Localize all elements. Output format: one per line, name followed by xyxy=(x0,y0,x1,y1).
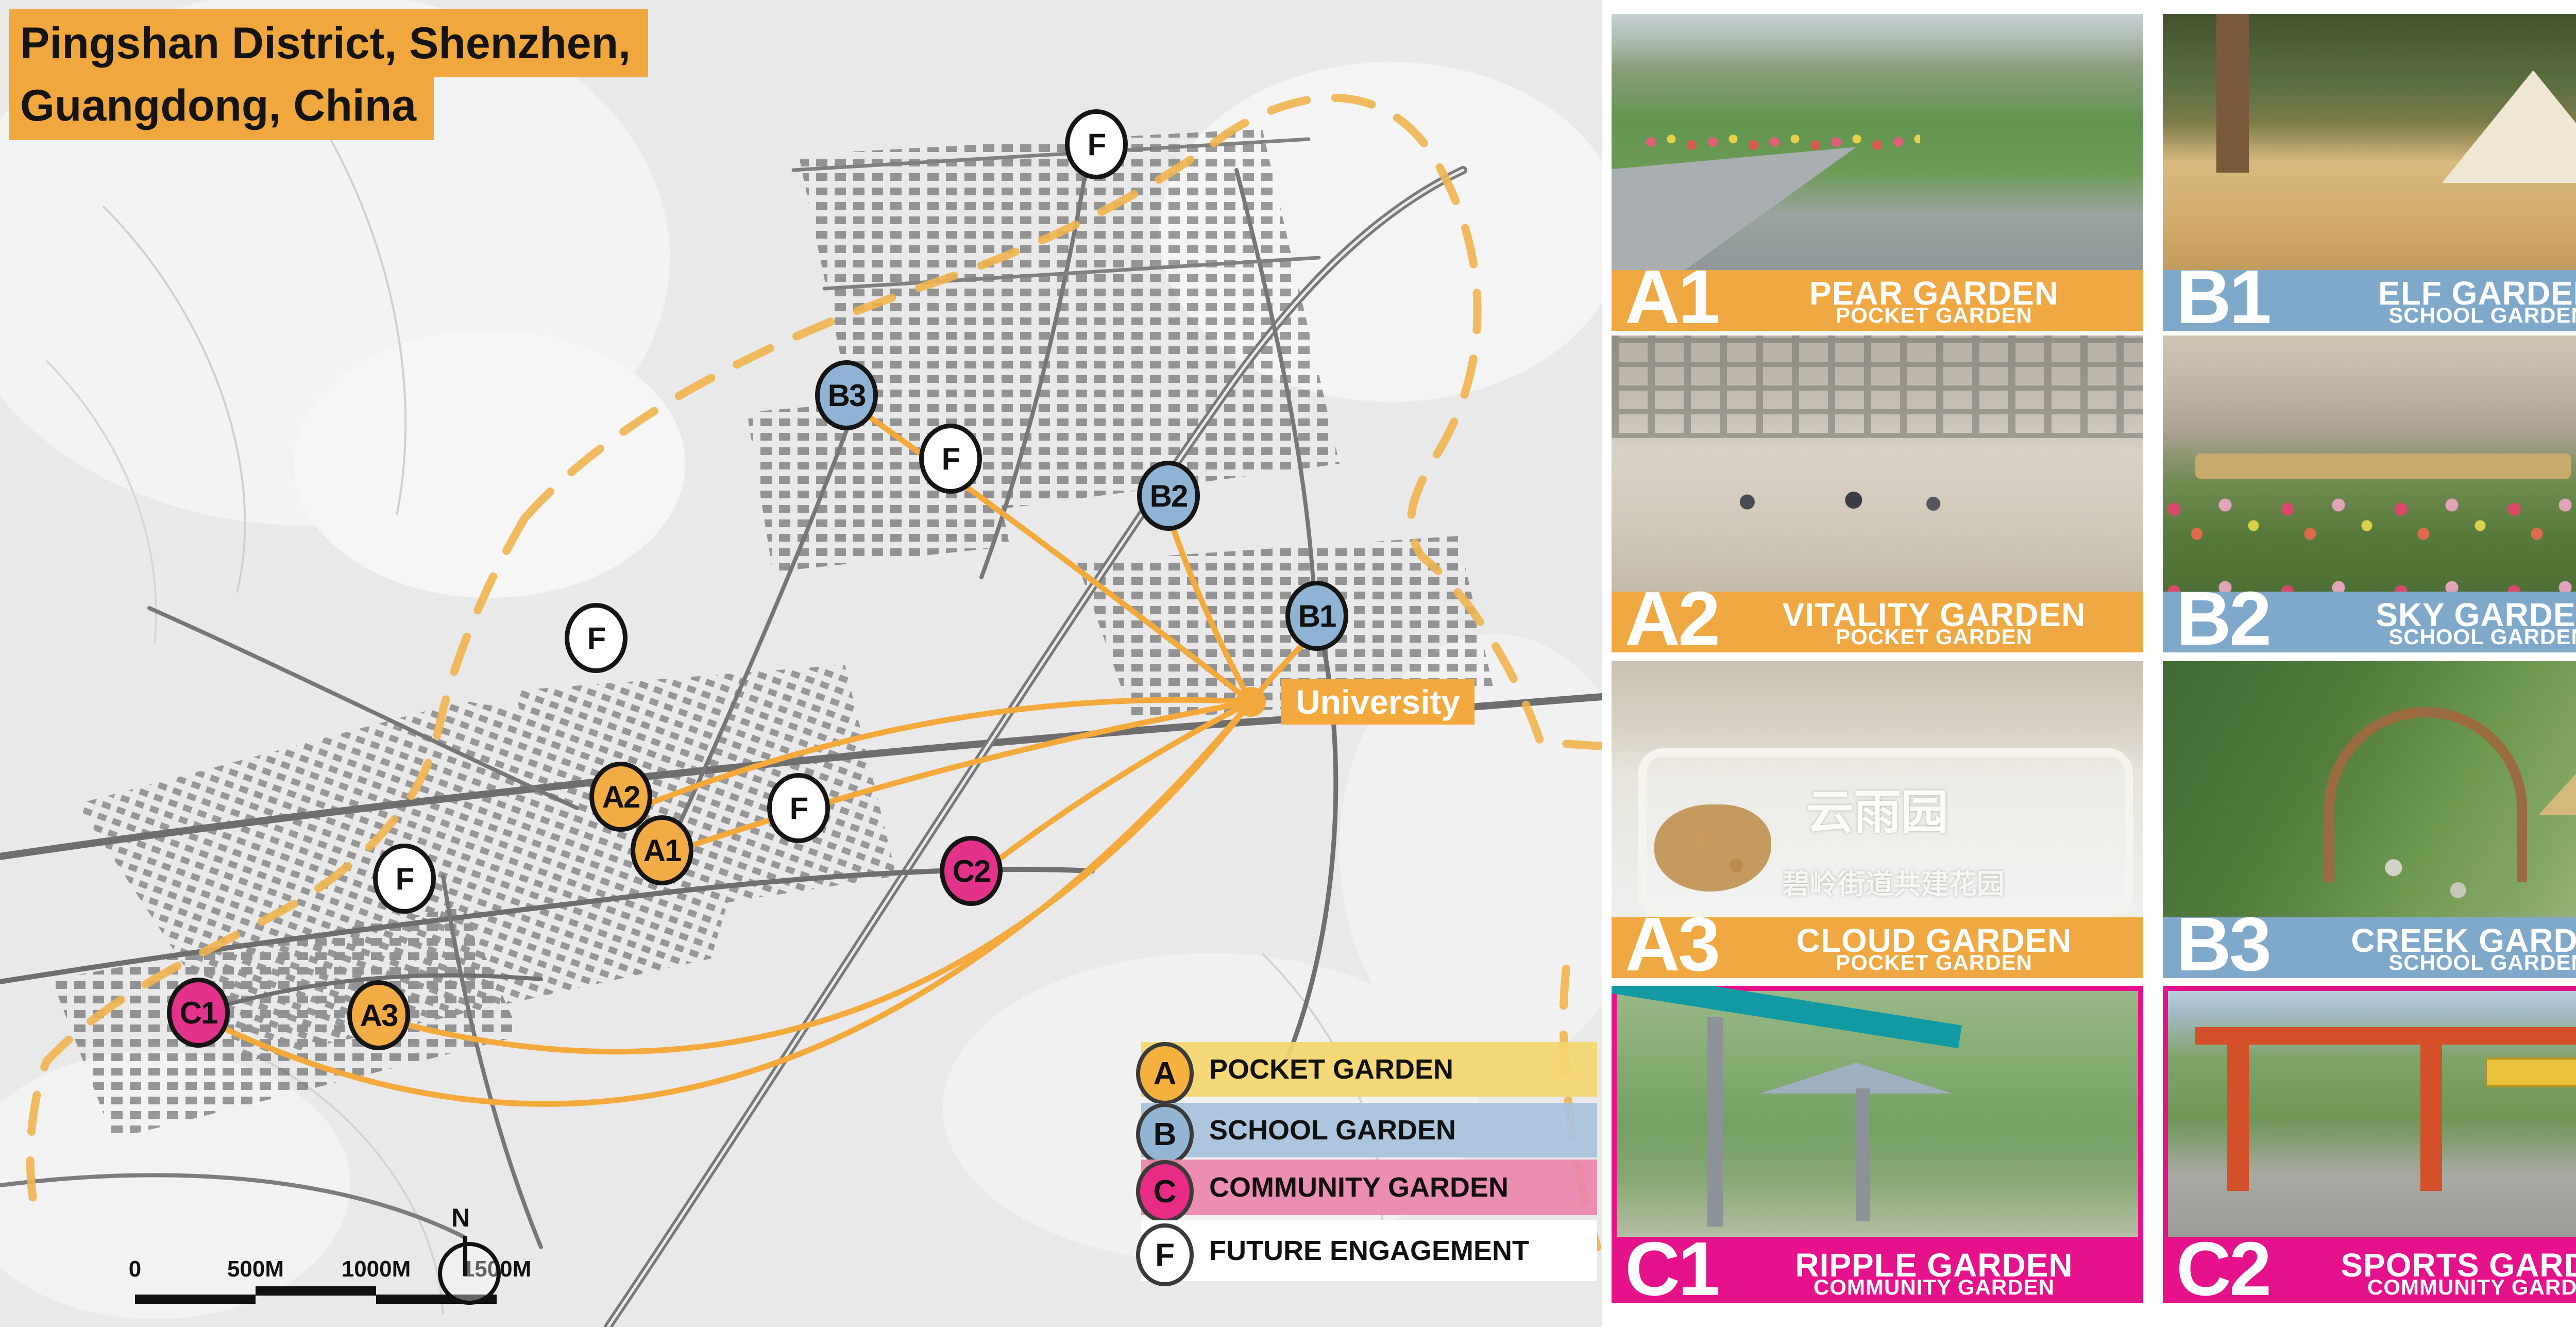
post-shape xyxy=(1856,1088,1870,1221)
garden-code-c2: C2 xyxy=(2176,1236,2269,1303)
garden-photo-b1 xyxy=(2163,14,2576,270)
garden-label-band-a1: A1PEAR GARDENPOCKET GARDEN xyxy=(1612,270,2143,331)
legend-circle-f: F xyxy=(1136,1223,1194,1286)
legend-row-b: BSCHOOL GARDEN xyxy=(1141,1103,1597,1157)
garden-code-b2: B2 xyxy=(2176,585,2269,652)
compass-circle xyxy=(438,1242,501,1305)
thatched-hut-shape xyxy=(2538,738,2576,815)
scale-tick-1000m: 1000M xyxy=(342,1256,411,1282)
garden-photo-a1 xyxy=(1612,14,2143,270)
building-windows-shape xyxy=(1612,335,2143,438)
garden-tile-a1: A1PEAR GARDENPOCKET GARDEN xyxy=(1612,14,2143,331)
map-marker-a2: A2 xyxy=(589,762,652,832)
garden-category-a1: POCKET GARDEN xyxy=(1735,303,2133,328)
garden-tile-b1: B1ELF GARDENSCHOOL GARDEN xyxy=(2163,14,2576,331)
teal-canopy-shape xyxy=(1612,986,1962,1048)
map-marker-f-1550: F xyxy=(767,773,830,843)
teepee-tent-shape xyxy=(2442,70,2576,183)
garden-code-c1: C1 xyxy=(1625,1236,1718,1303)
legend-circle-a: A xyxy=(1136,1042,1194,1105)
garden-tile-a2: A2VITALITY GARDENPOCKET GARDEN xyxy=(1612,335,2143,652)
flower-bed-shape xyxy=(1643,127,1920,158)
garden-photo-c2 xyxy=(2163,986,2576,1242)
legend-label-b: SCHOOL GARDEN xyxy=(1209,1114,1456,1146)
scale-tick-500m: 500M xyxy=(227,1256,284,1282)
map-marker-c2: C2 xyxy=(940,836,1003,906)
map-marker-a1: A1 xyxy=(631,815,693,885)
garden-photo-gallery: A1PEAR GARDENPOCKET GARDENB1ELF GARDENSC… xyxy=(1602,0,2576,1327)
legend-row-a: APOCKET GARDEN xyxy=(1141,1042,1597,1097)
pingshan-garden-map-board: { "title": { "line1": "Pingshan District… xyxy=(0,0,2576,1327)
garden-photo-a2 xyxy=(1612,335,2143,592)
garden-code-a3: A3 xyxy=(1625,911,1718,978)
district-map: University FB3FB2B1FA2FA1C2FC1A3 Pingsha… xyxy=(0,0,1602,1327)
yellow-sign-shape xyxy=(2485,1057,2576,1087)
garden-category-b1: SCHOOL GARDEN xyxy=(2286,303,2576,328)
planter-shape xyxy=(2195,453,2571,479)
garden-photo-c1 xyxy=(1612,986,2143,1242)
pergola-post-shape xyxy=(2420,1027,2442,1191)
legend-label-a: POCKET GARDEN xyxy=(1209,1053,1453,1085)
path-shape xyxy=(1612,147,1856,270)
post-shape xyxy=(1707,1017,1723,1227)
stone-path-shape xyxy=(2345,851,2506,907)
map-marker-c1: C1 xyxy=(167,978,230,1048)
university-label: University xyxy=(1281,679,1475,725)
garden-tile-c2: C2SPORTS GARDENCOMMUNITY GARDEN xyxy=(2163,986,2576,1303)
scale-segment-1 xyxy=(135,1295,256,1304)
garden-sign-chinese-name: 云雨园 xyxy=(1771,774,1984,843)
compass-north-label: N xyxy=(451,1203,470,1233)
scale-segment-2 xyxy=(256,1286,376,1296)
pergola-post-shape xyxy=(2227,1027,2249,1191)
map-marker-f-1845: F xyxy=(919,424,982,494)
legend-circle-c: C xyxy=(1136,1160,1194,1223)
garden-photo-b3 xyxy=(2163,661,2576,917)
garden-code-a1: A1 xyxy=(1625,264,1718,331)
garden-category-b2: SCHOOL GARDEN xyxy=(2286,625,2576,649)
garden-category-c2: COMMUNITY GARDEN xyxy=(2286,1275,2576,1300)
map-marker-f-2128: F xyxy=(1065,109,1128,179)
garden-category-c1: COMMUNITY GARDEN xyxy=(1735,1275,2133,1300)
legend-label-f: FUTURE ENGAGEMENT xyxy=(1209,1235,1529,1267)
garden-code-b3: B3 xyxy=(2176,911,2269,978)
compass-needle-icon xyxy=(463,1236,467,1276)
map-marker-b3: B3 xyxy=(815,360,878,430)
garden-tile-c1: C1RIPPLE GARDENCOMMUNITY GARDEN xyxy=(1612,986,2143,1303)
legend-row-f: FFUTURE ENGAGEMENT xyxy=(1141,1220,1597,1281)
garden-label-band-b3: B3CREEK GARDENSCHOOL GARDEN xyxy=(2163,917,2576,978)
scale-tick-0: 0 xyxy=(129,1256,141,1282)
garden-code-b1: B1 xyxy=(2176,264,2269,331)
garden-tile-b3: B3CREEK GARDENSCHOOL GARDEN xyxy=(2163,661,2576,978)
flowers-shape xyxy=(2163,476,2576,592)
university-hub-dot xyxy=(1236,687,1266,717)
garden-category-a2: POCKET GARDEN xyxy=(1735,625,2133,649)
map-marker-b2: B2 xyxy=(1137,461,1200,531)
garden-label-band-b1: B1ELF GARDENSCHOOL GARDEN xyxy=(2163,270,2576,331)
garden-label-band-b2: B2SKY GARDENSCHOOL GARDEN xyxy=(2163,592,2576,652)
garden-category-a3: POCKET GARDEN xyxy=(1735,950,2133,975)
garden-label-band-c2: C2SPORTS GARDENCOMMUNITY GARDEN xyxy=(2163,1242,2576,1303)
garden-label-band-a3: A3CLOUD GARDENPOCKET GARDEN xyxy=(1612,917,2143,978)
garden-sign-chinese-subtitle: 碧岭街道共建花园 xyxy=(1707,861,2079,902)
garden-tile-a3: 云雨园碧岭街道共建花园A3CLOUD GARDENPOCKET GARDEN xyxy=(1612,661,2143,978)
people-shape xyxy=(1707,484,1973,520)
tree-trunk-shape xyxy=(2216,14,2249,173)
map-title-line2: Guangdong, China xyxy=(9,77,434,140)
map-title-line1: Pingshan District, Shenzhen, xyxy=(9,9,648,77)
map-marker-a3: A3 xyxy=(347,980,410,1050)
garden-label-band-a2: A2VITALITY GARDENPOCKET GARDEN xyxy=(1612,592,2143,652)
garden-category-b3: SCHOOL GARDEN xyxy=(2286,950,2576,975)
map-marker-f-1157: F xyxy=(565,603,628,673)
map-marker-f-785: F xyxy=(373,844,436,914)
legend-row-c: CCOMMUNITY GARDEN xyxy=(1141,1160,1597,1215)
garden-photo-a3: 云雨园碧岭街道共建花园 xyxy=(1612,661,2143,917)
garden-code-a2: A2 xyxy=(1625,585,1718,652)
legend-circle-b: B xyxy=(1136,1103,1194,1166)
pergola-beam-shape xyxy=(2195,1027,2576,1045)
garden-photo-b2 xyxy=(2163,335,2576,592)
garden-tile-b2: B2SKY GARDENSCHOOL GARDEN xyxy=(2163,335,2576,652)
garden-label-band-c1: C1RIPPLE GARDENCOMMUNITY GARDEN xyxy=(1612,1242,2143,1303)
legend-label-c: COMMUNITY GARDEN xyxy=(1209,1171,1509,1203)
map-marker-b1: B1 xyxy=(1285,581,1348,651)
